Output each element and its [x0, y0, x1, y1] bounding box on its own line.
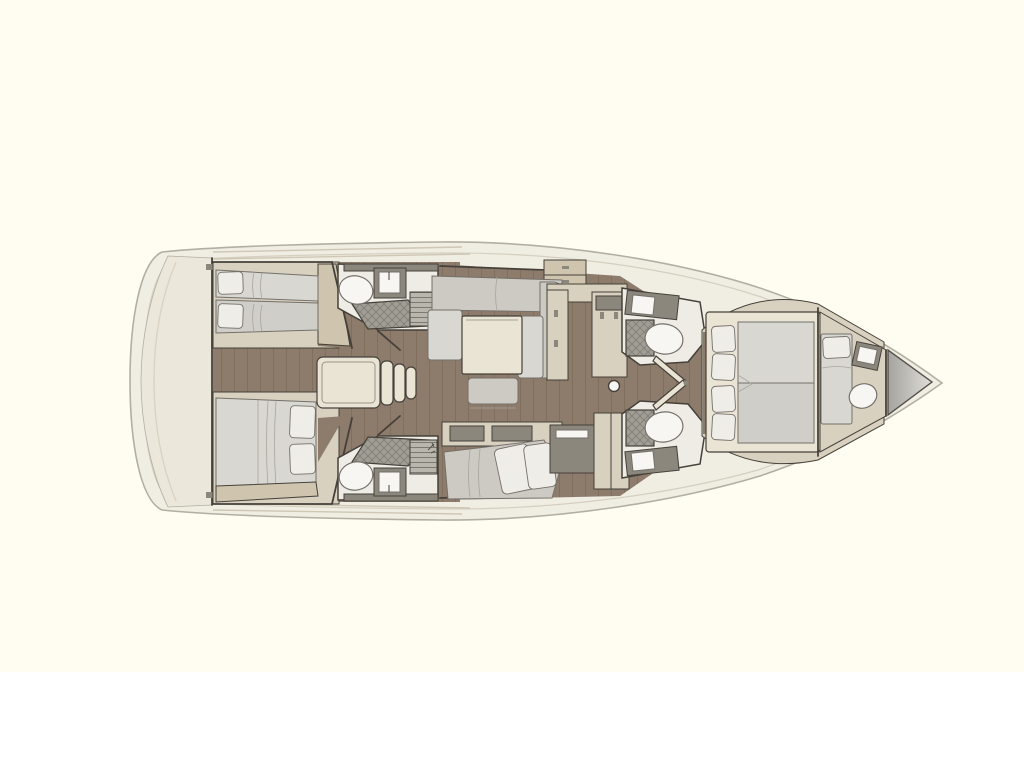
sideboard-handle2	[562, 280, 569, 283]
salon-table	[462, 316, 522, 374]
owner-pillow-1	[711, 325, 735, 352]
mast-post	[609, 381, 620, 392]
crew-bed-pillow	[822, 336, 850, 358]
companionway-step-2	[394, 364, 405, 402]
lounge-nav	[440, 413, 629, 499]
galley-handle-3	[600, 312, 604, 319]
forward-head-starboard-sink	[631, 451, 655, 471]
aft-cabin-port	[213, 262, 352, 348]
nav-worktop-inset	[556, 430, 588, 438]
lounge-counter-inset-1	[450, 426, 484, 441]
floor-plan-canvas	[0, 0, 1024, 768]
twin-bed-2-pillow	[218, 304, 244, 329]
sideboard-handle	[562, 266, 569, 269]
yacht-floor-plan	[0, 0, 1024, 768]
galley-handle-2	[554, 340, 558, 347]
double-bed-pillow-1	[289, 406, 315, 439]
galley-counter-left	[547, 290, 568, 380]
owner-bed-mattress-bottom	[738, 383, 814, 443]
door-hinge-dot	[684, 381, 689, 386]
forward-head-port-sink	[631, 295, 655, 315]
twin-bed-1-pillow	[218, 272, 244, 295]
aft-cabin-starboard	[213, 392, 352, 504]
owner-pillow-2	[711, 353, 735, 380]
companionway-step-1	[381, 361, 393, 405]
companionway-step-3	[406, 367, 416, 399]
salon-stool	[468, 378, 518, 404]
sofa-seat-left	[428, 310, 462, 360]
galley-handle-1	[554, 310, 558, 317]
engine-box	[317, 357, 380, 408]
owner-pillow-4	[711, 413, 735, 440]
crew-sink	[857, 346, 878, 364]
crew-cabin	[820, 312, 886, 452]
lounge-counter-inset-2	[492, 426, 532, 441]
owner-bed-mattress-top	[738, 322, 814, 383]
double-bed-pillow-2	[289, 444, 315, 475]
galley-worktop-inset	[596, 296, 623, 310]
galley-handle-4	[614, 312, 618, 319]
owner-pillow-3	[711, 385, 735, 412]
companionway	[317, 357, 416, 408]
